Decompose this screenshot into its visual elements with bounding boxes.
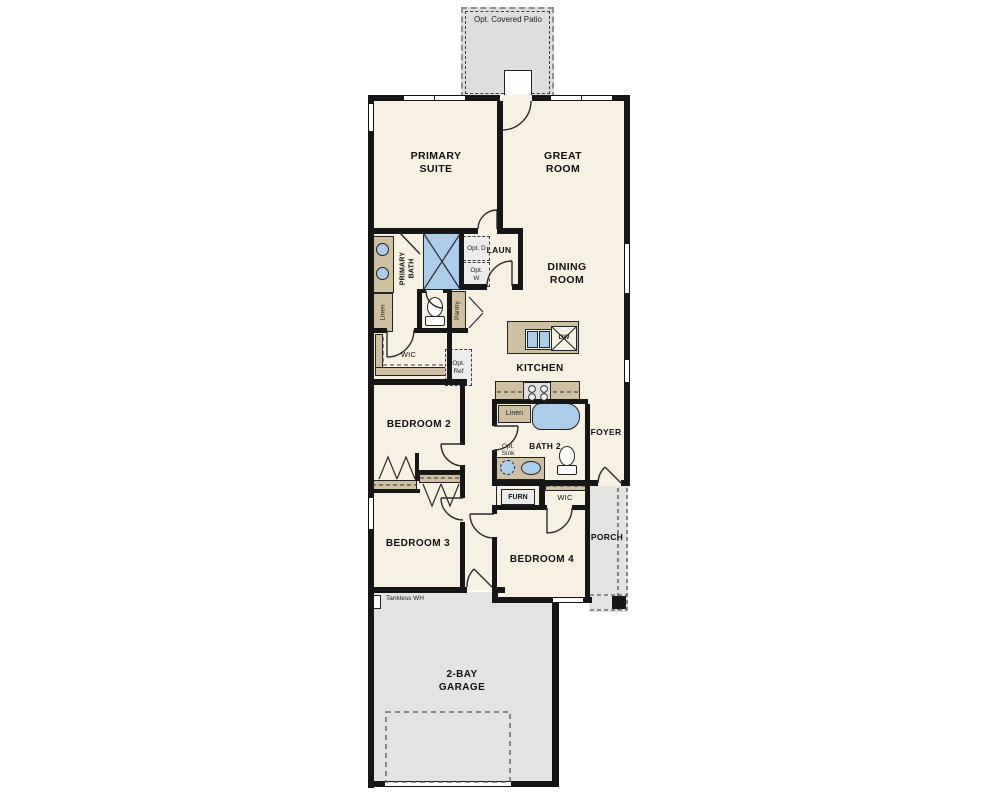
window xyxy=(435,95,465,101)
dishwasher-label: DW xyxy=(551,334,577,341)
tankless-wh-label: Tankless WH xyxy=(383,595,427,602)
furnace-label: FURN xyxy=(508,494,527,501)
laundry-label: LAUN xyxy=(478,245,520,255)
wall xyxy=(572,505,590,510)
wall xyxy=(459,284,487,290)
wall xyxy=(368,587,467,593)
island-sink-basin-left xyxy=(527,331,538,348)
window xyxy=(624,360,630,382)
wall xyxy=(518,233,523,290)
wall xyxy=(368,379,467,385)
bath2-toilet-tank xyxy=(557,465,577,475)
pantry-label: Pantry xyxy=(449,291,466,330)
primary-suite-label: PRIMARY SUITE xyxy=(395,150,477,176)
garage-door xyxy=(385,781,511,787)
window xyxy=(551,95,581,101)
wall xyxy=(492,505,547,510)
window xyxy=(553,597,583,603)
dining-room-label: DINING ROOM xyxy=(530,261,604,287)
island-sink-basin-right xyxy=(539,331,550,348)
wall xyxy=(492,480,598,486)
wall xyxy=(497,95,503,233)
furnace-box: FURN xyxy=(501,489,535,505)
window xyxy=(368,498,374,529)
wall xyxy=(447,328,452,383)
wall xyxy=(492,399,588,404)
patio-door-panel xyxy=(504,70,532,97)
kitchen-label: KITCHEN xyxy=(498,362,582,375)
great-room-label: GREAT ROOM xyxy=(527,150,599,176)
wall xyxy=(368,95,374,788)
primary-bath-label: PRIMARY BATH xyxy=(380,240,436,296)
wall xyxy=(512,284,523,290)
primary-toilet-tank xyxy=(425,316,445,326)
floor-porch xyxy=(589,486,628,612)
opt-sink-label: Opt. Sink xyxy=(495,443,521,457)
wic-bedroom4-label: WIC xyxy=(545,494,585,502)
door-opening-patio xyxy=(500,95,532,101)
bath2-opt-sink xyxy=(500,460,515,475)
window xyxy=(404,95,434,101)
bedroom3-label: BEDROOM 3 xyxy=(371,537,465,550)
wall xyxy=(368,489,420,493)
bedroom4-label: BEDROOM 4 xyxy=(496,553,588,566)
primary-linen-label: Linen xyxy=(372,293,393,332)
wall xyxy=(415,470,464,474)
window xyxy=(582,95,612,101)
wic-primary-label: WIC xyxy=(386,351,431,359)
wic-shelf-bottom xyxy=(375,367,447,376)
wall xyxy=(459,233,464,290)
window xyxy=(368,104,374,131)
patio-label: Opt. Covered Patio xyxy=(467,16,549,23)
primary-toilet-bowl xyxy=(427,297,443,317)
bedroom2-label: BEDROOM 2 xyxy=(372,418,466,431)
bathtub xyxy=(532,403,580,430)
wall xyxy=(415,453,419,481)
wall xyxy=(460,379,465,445)
bedroom3-closet-shelf xyxy=(419,474,463,483)
wall xyxy=(552,603,559,787)
opt-washer-label: Opt. W xyxy=(467,267,486,282)
wall xyxy=(460,522,465,588)
window xyxy=(624,244,630,293)
foyer-label: FOYER xyxy=(584,427,628,437)
porch-label: PORCH xyxy=(585,532,629,542)
bath2-label: BATH 2 xyxy=(512,441,578,451)
garage-label: 2-BAY GARAGE xyxy=(426,668,498,694)
wall xyxy=(621,480,630,486)
bath2-linen-label: Linen xyxy=(498,410,531,417)
floor-plan: Opt. D Opt. W Opt. Ref FURN xyxy=(0,0,1000,800)
bath2-sink xyxy=(521,461,541,475)
